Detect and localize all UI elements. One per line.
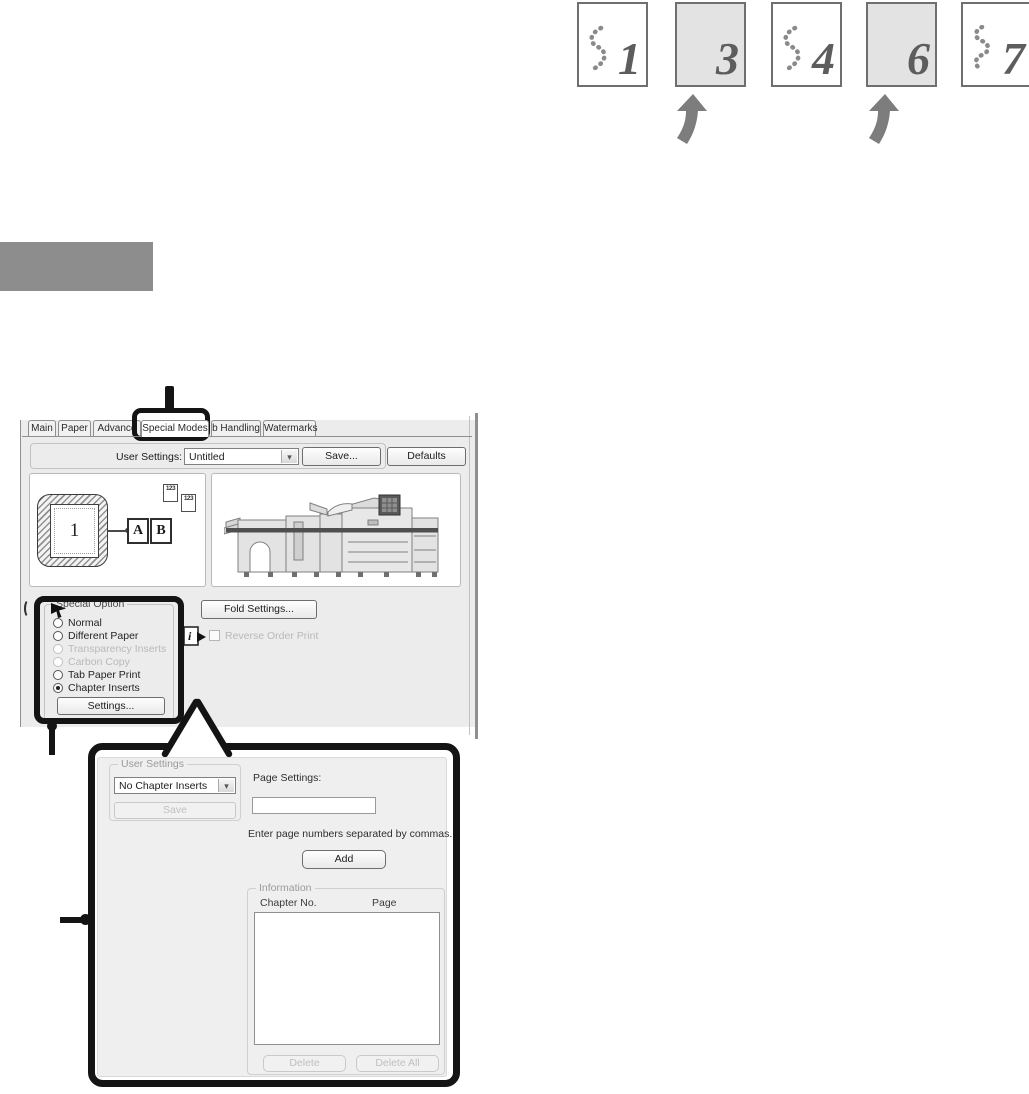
page-number: 4: [812, 33, 835, 85]
page-thumb-1: 1: [577, 2, 648, 87]
tab-advanced[interactable]: Advance: [93, 420, 141, 436]
chapter-user-settings-title: User Settings: [118, 759, 187, 770]
dotted-squiggle-icon: [779, 25, 805, 73]
radio-carbon-copy: [53, 657, 63, 667]
radio-normal[interactable]: [53, 618, 63, 628]
information-group: Information Chapter No. Page Delete Dele…: [247, 888, 445, 1075]
chapter-user-settings-group: User Settings No Chapter Inserts Save: [109, 764, 241, 821]
column-header-chapter-no: Chapter No.: [260, 897, 317, 909]
tab-special-modes[interactable]: Special Modes: [141, 420, 209, 437]
tab-paper[interactable]: Paper: [58, 420, 91, 436]
tab-main[interactable]: Main: [28, 420, 56, 436]
dotted-squiggle-icon: [585, 25, 611, 73]
section-heading-block: [0, 242, 153, 291]
page-numbers-hint: Enter page numbers separated by commas.: [248, 828, 452, 840]
up-arrow-icon: [866, 94, 900, 144]
leader-line: [49, 729, 55, 755]
radio-normal-label[interactable]: Normal: [68, 618, 102, 629]
radio-tab-paper-print[interactable]: [53, 670, 63, 680]
page-flow-illustration: 1 3 4 6 7: [0, 0, 1029, 160]
tab-strip-underline: [22, 436, 472, 437]
printer-driver-dialog: Main Paper Advance Special Modes b Handl…: [20, 420, 477, 727]
defaults-button[interactable]: Defaults: [387, 447, 466, 466]
chevron-down-icon[interactable]: [281, 450, 297, 463]
chapter-user-settings-dropdown-value: No Chapter Inserts: [119, 779, 207, 794]
mini-pages-icon: 123: [181, 494, 196, 512]
preview-output-page-a: A: [127, 518, 149, 544]
page-thumb-4: 4: [771, 2, 842, 87]
user-settings-dropdown-value: Untitled: [189, 450, 225, 465]
page-settings-input[interactable]: [252, 797, 376, 814]
reverse-order-print-checkbox: [209, 630, 220, 641]
page-thumb-7: 7: [961, 2, 1029, 87]
radio-transparency-inserts: [53, 644, 63, 654]
user-settings-label: User Settings:: [111, 451, 182, 463]
dialog-right-edge: [469, 416, 470, 735]
reverse-order-print-label: Reverse Order Print: [225, 631, 318, 642]
radio-tab-paper-print-label[interactable]: Tab Paper Print: [68, 670, 140, 681]
fold-settings-button[interactable]: Fold Settings...: [201, 600, 317, 619]
radio-chapter-inserts[interactable]: [53, 683, 63, 693]
tab-job-handling[interactable]: b Handling: [211, 420, 261, 436]
info-pointer-icon: i: [183, 626, 207, 648]
page-number: 6: [907, 33, 930, 85]
preview-original-page: 1: [37, 494, 108, 567]
page-number: 3: [716, 33, 739, 85]
delete-button: Delete: [263, 1055, 346, 1072]
page-number: 7: [1002, 33, 1025, 85]
page-thumb-6-insert: 6: [866, 2, 937, 87]
column-header-page: Page: [372, 897, 397, 909]
add-button[interactable]: Add: [302, 850, 386, 869]
chapter-list-box[interactable]: [254, 912, 440, 1045]
information-title: Information: [256, 883, 315, 894]
chevron-down-icon[interactable]: [218, 779, 234, 792]
callout-stem-line: [165, 386, 174, 412]
radio-transparency-inserts-label: Transparency Inserts: [68, 644, 166, 655]
user-settings-dropdown[interactable]: Untitled: [184, 448, 299, 465]
control-panel-icon: [379, 495, 400, 515]
radio-different-paper[interactable]: [53, 631, 63, 641]
tab-watermarks[interactable]: Watermarks: [263, 420, 316, 436]
radio-different-paper-label[interactable]: Different Paper: [68, 631, 138, 642]
dialog-right-shadow: [475, 413, 478, 739]
chapter-save-button: Save: [114, 802, 236, 819]
print-preview-panel: 1 A B 123 123: [29, 473, 206, 587]
page-settings-label: Page Settings:: [253, 772, 321, 784]
leader-dot: [80, 914, 91, 925]
dotted-squiggle-icon: [969, 25, 995, 73]
mini-pages-icon: 123: [163, 484, 178, 502]
connector-line: [107, 530, 127, 532]
save-button[interactable]: Save...: [302, 447, 381, 466]
page-number: 1: [618, 33, 641, 85]
radio-carbon-copy-label: Carbon Copy: [68, 657, 130, 668]
printer-image-panel: [211, 473, 461, 587]
chapter-user-settings-dropdown[interactable]: No Chapter Inserts: [114, 777, 236, 794]
page-thumb-3-insert: 3: [675, 2, 746, 87]
preview-page-sheet: 1: [50, 504, 99, 558]
delete-all-button: Delete All: [356, 1055, 439, 1072]
pointer-arrow-icon: [50, 602, 67, 619]
chapter-inserts-dialog: User Settings No Chapter Inserts Save Pa…: [97, 757, 447, 1077]
preview-page-number: 1: [54, 508, 95, 554]
printer-illustration: [224, 490, 450, 584]
up-arrow-icon: [674, 94, 708, 144]
step-circle-arc: [24, 599, 34, 618]
preview-output-page-b: B: [150, 518, 172, 544]
